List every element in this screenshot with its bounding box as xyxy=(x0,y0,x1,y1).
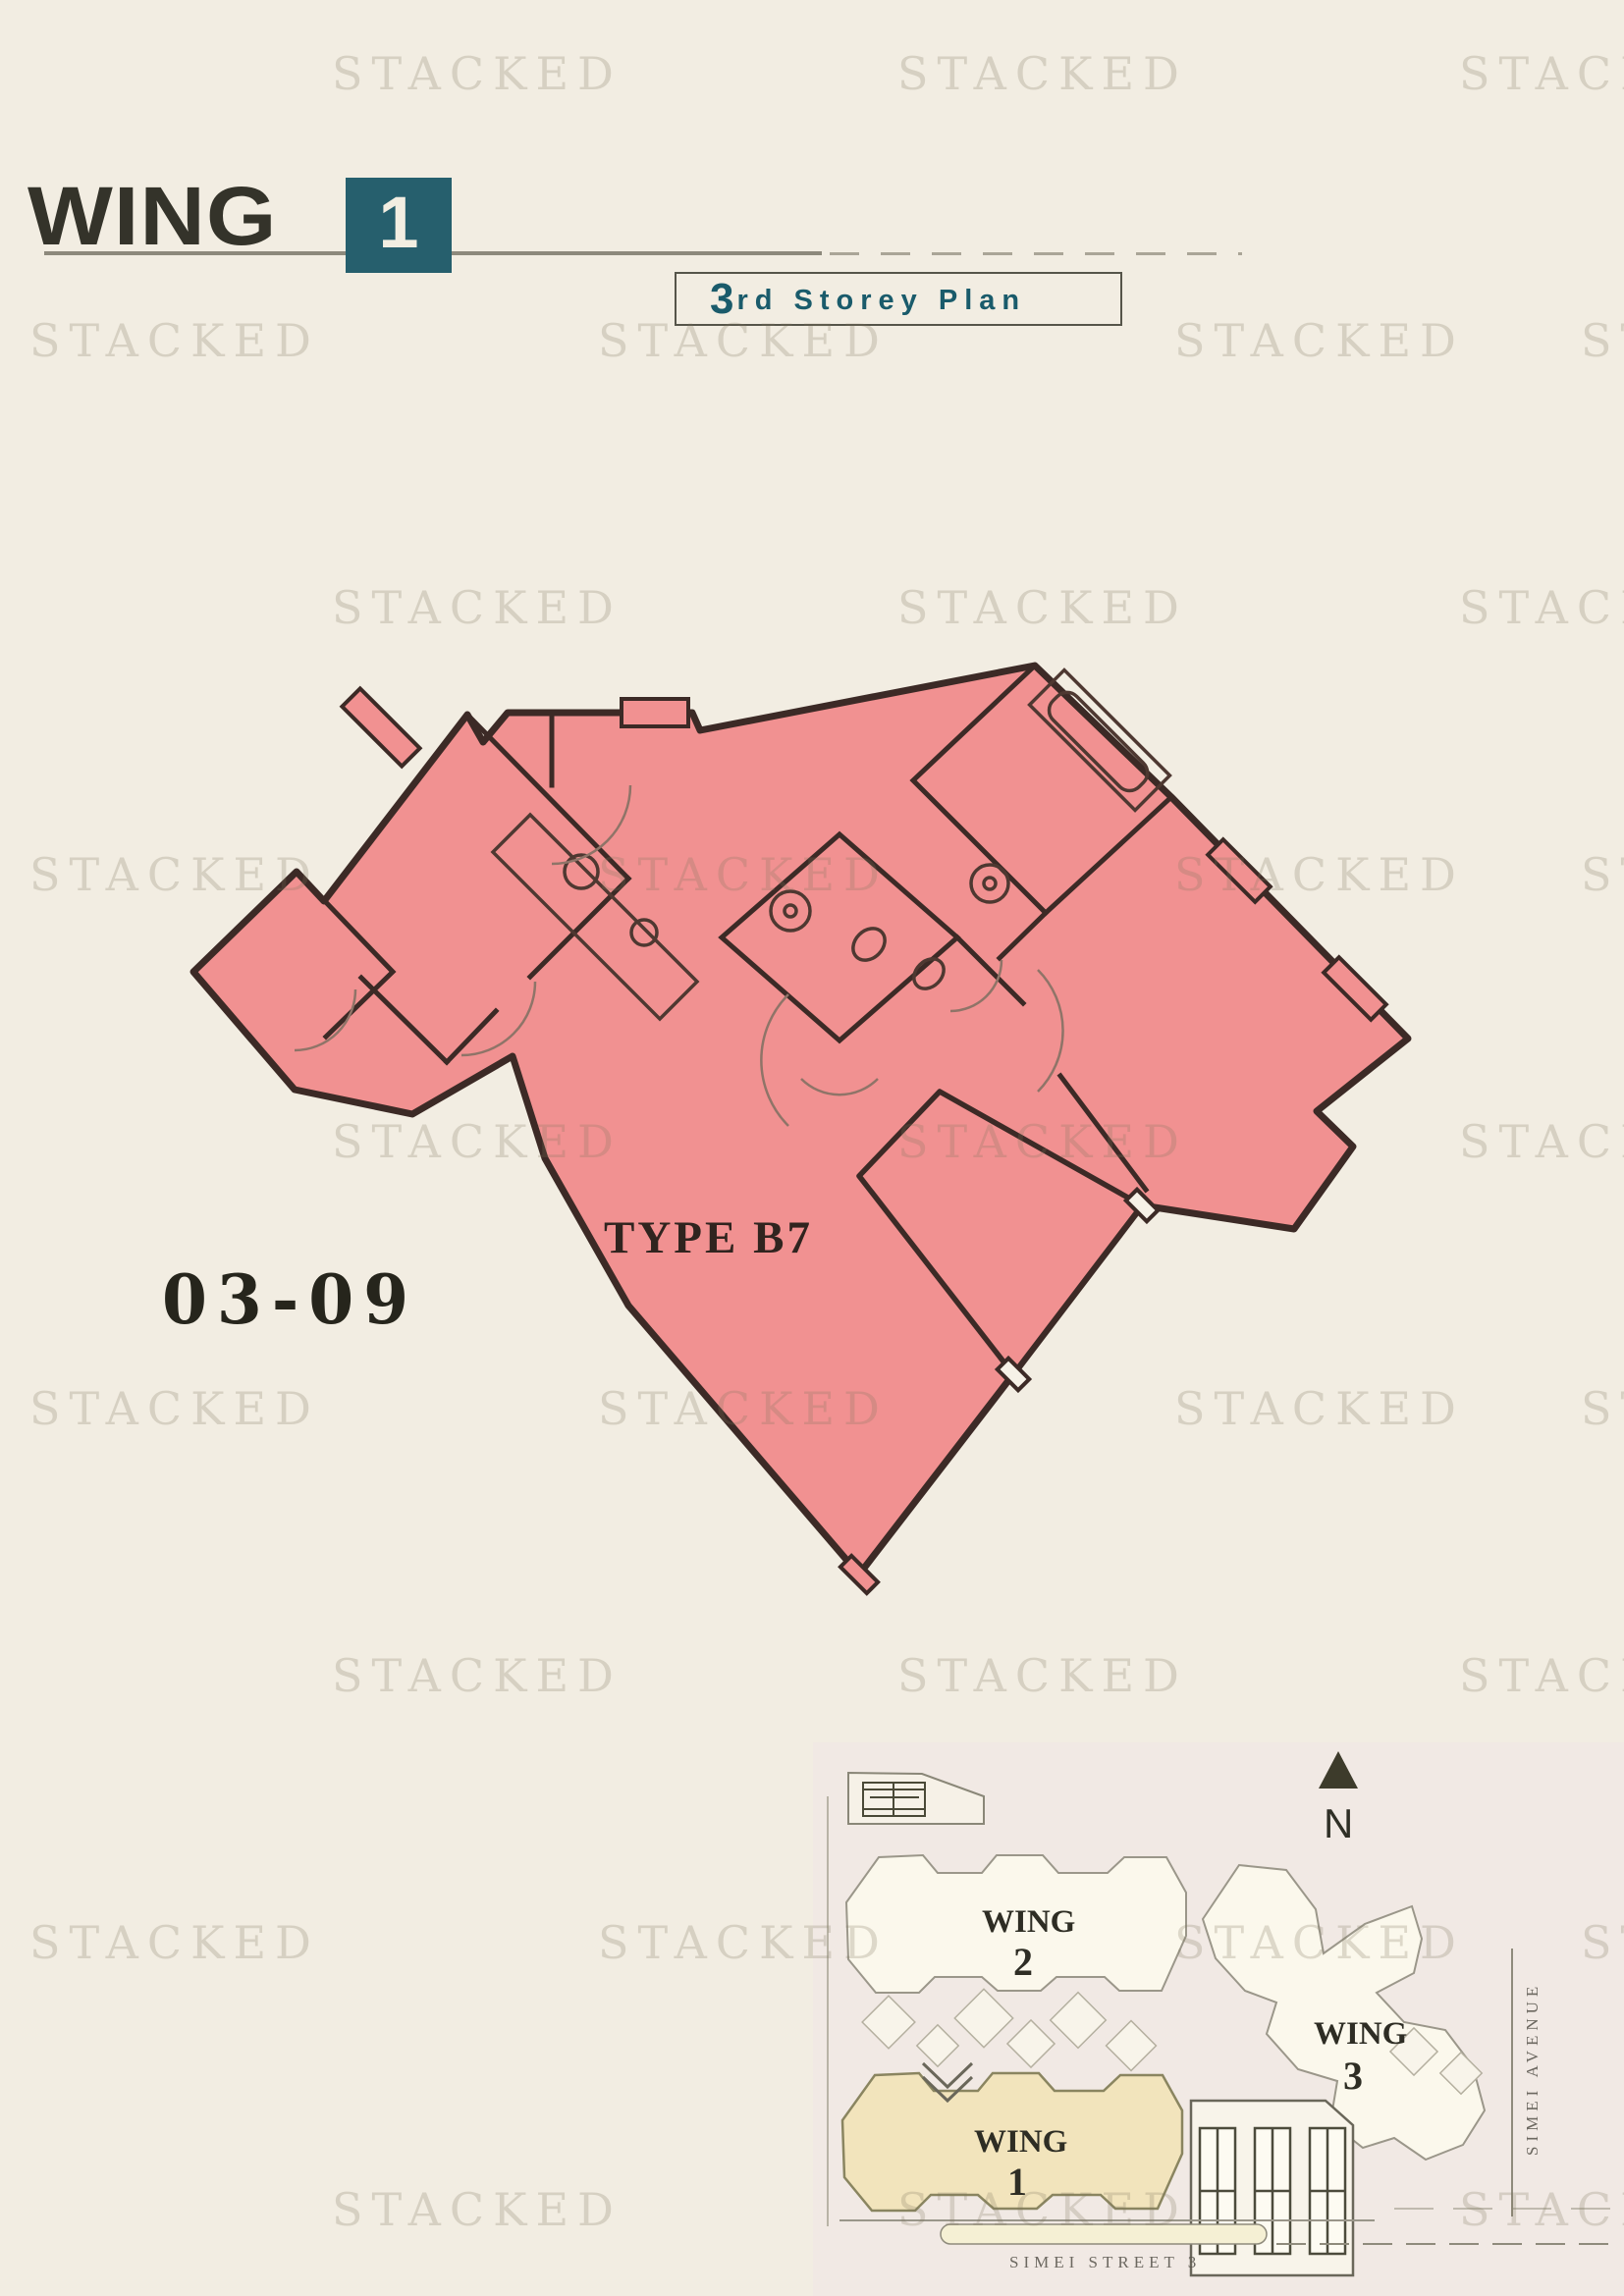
storey-number: 3 xyxy=(710,278,733,321)
wing-number: 1 xyxy=(378,187,418,265)
road-island xyxy=(941,2224,1267,2244)
unit-type-label: TYPE B7 xyxy=(604,1212,813,1263)
wing3-label: WING xyxy=(1314,2016,1407,2052)
page-title: WING xyxy=(27,175,277,258)
wing3-number: 3 xyxy=(1343,2054,1363,2098)
storey-text: rd Storey Plan xyxy=(736,281,1026,317)
unit-outline xyxy=(193,666,1408,1575)
hall-building xyxy=(1191,2101,1353,2275)
site-plan: N WING 2 WING 1 WING 3 SIMEI STREET 3 SI… xyxy=(813,1742,1624,2296)
wing1-number: 1 xyxy=(1007,2160,1027,2204)
header-underline-dashed xyxy=(830,252,1242,255)
wing1-label: WING xyxy=(974,2124,1067,2160)
street-label-bottom: SIMEI STREET 3 xyxy=(1009,2253,1201,2271)
unit-number-label: 03-09 xyxy=(162,1259,418,1340)
wardrobe-cap xyxy=(342,688,419,766)
wing2-label: WING xyxy=(982,1904,1075,1940)
wing-number-badge: 1 xyxy=(346,178,452,273)
north-label: N xyxy=(1324,1800,1353,1846)
kitchen-window xyxy=(622,699,688,726)
storey-plan-label: 3 rd Storey Plan xyxy=(675,272,1122,326)
street-label-right: SIMEI AVENUE xyxy=(1523,1982,1542,2156)
floor-plan-page: WING 1 3 rd Storey Plan xyxy=(0,0,1624,2296)
wing2-number: 2 xyxy=(1013,1940,1033,1984)
floor-plan-drawing: TYPE B7 xyxy=(137,589,1483,1688)
